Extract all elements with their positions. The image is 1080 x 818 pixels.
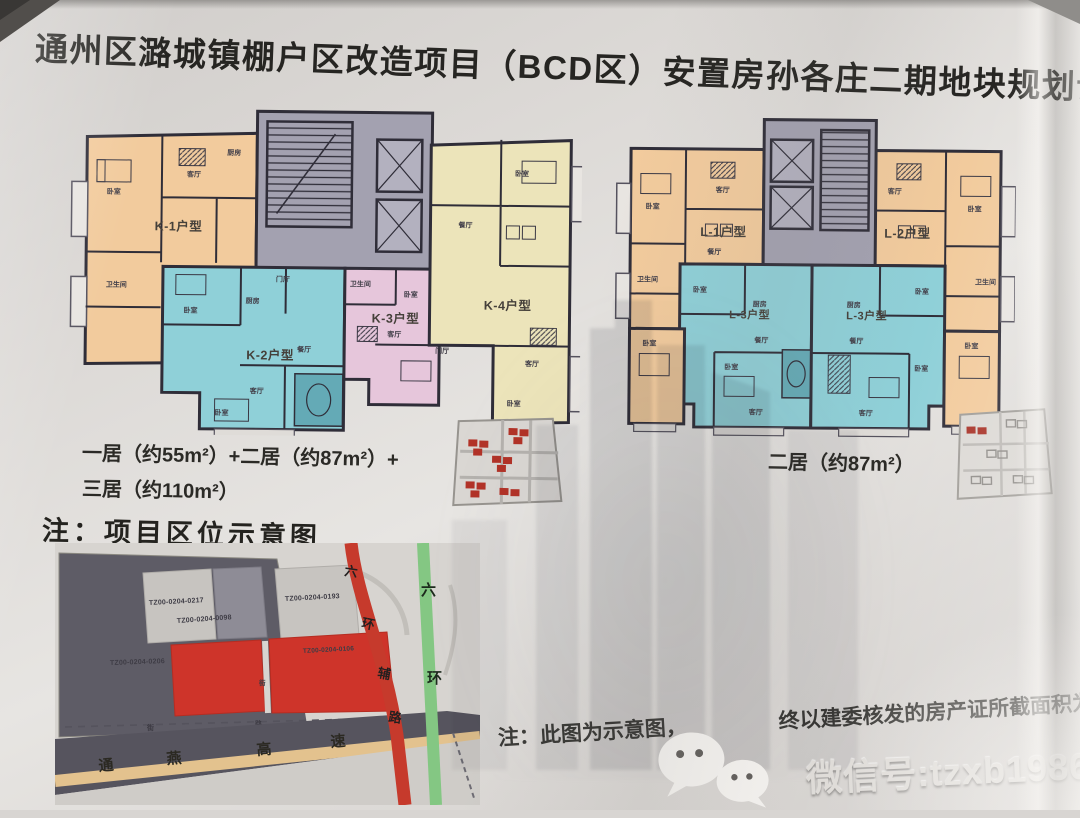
unit-l3-right: 卧室 厨房 餐厅 卧室 客厅 L-3户型 [811,265,945,437]
caption-right: 二居（约87m²） [768,445,915,477]
room-label: 卧室 [214,408,228,417]
room-label: 客厅 [887,187,902,196]
room-label: 卧室 [915,287,929,296]
highway-label-char: 通 [98,757,114,775]
room-label: 卧室 [642,338,656,347]
photo-top-edge [0,0,1080,9]
room-label: 卫生间 [637,274,658,283]
unit-label-k3: K-3户型 [372,311,420,326]
unit-label-l1: L-1户型 [700,224,746,239]
room-label: 厨房 [847,300,861,309]
highway-label-char: 速 [330,732,347,751]
poster-title: 通州区潞城镇棚户区改造项目（BCD区）安置房孙各庄二期地块规划设计方案 [34,22,1055,107]
ring-aux-char: 六 [344,563,359,580]
unit-l1-lower: 卧室 [629,328,685,431]
site-plan-thumbnail-right [944,401,1061,509]
room-label: 客厅 [186,170,201,179]
room-label: 卫生间 [350,279,371,288]
ring-char: 六 [421,581,436,599]
elevator [377,140,423,192]
room-label: 卧室 [693,285,707,294]
room-label: 客厅 [249,386,264,395]
elevator [376,200,422,252]
room-label: 餐厅 [296,345,311,354]
room-label: 餐厅 [706,247,721,256]
floor-plan-right: 卧室 客厅 卫生间 餐厅 L-1户型 卧室 客厅 卫生间 L-2户型 [614,113,1017,441]
location-map: TZ00-0204-0206 TZ00-0204-0217 TZ00-0204-… [55,543,480,805]
room-label: 卧室 [107,187,121,196]
room-label: 卧室 [184,306,198,315]
site-plan-thumbnail-left [439,411,571,515]
room-label: 卧室 [968,204,982,213]
wechat-icon [648,722,792,817]
poster-photo: 通州区潞城镇棚户区改造项目（BCD区）安置房孙各庄二期地块规划设计方案 卧室 客… [0,0,1080,810]
unit-label-l2: L-2户型 [884,226,930,241]
room-label: 餐厅 [848,336,863,345]
room-label: 卧室 [646,202,660,211]
room-label: 卧室 [515,169,529,178]
room-label: 餐厅 [457,220,472,229]
floor-plan-left: 卧室 客厅 厨房 卫生间 餐厅 门厅 K-1户型 [64,101,582,438]
room-label: 卧室 [914,364,928,373]
room-label: 餐厅 [753,335,768,344]
street-label: 街 [258,678,266,687]
elevator [770,187,812,229]
room-label: 客厅 [524,359,539,368]
room-label: 卫生间 [975,277,996,286]
room-label: 卧室 [507,399,521,408]
unit-label-k4: K-4户型 [484,298,532,313]
room-label: 厨房 [753,299,767,308]
highway-label-char: 高 [256,740,273,759]
unit-label-k2: K-2户型 [246,347,294,362]
highway-label-char: 燕 [166,749,183,768]
unit-label-l3: L-3户型 [846,308,887,322]
caption-left-line1: 一居（约55m²）+二居（约87m²）+ [82,437,399,473]
stair-elevator-core [763,120,876,276]
ring-aux-char: 辅 [376,665,391,682]
note-part2: 终以建委核发的房产证所截面积为准 [778,690,1080,733]
room-label: 卧室 [724,362,738,371]
photo-corner-topright [1028,0,1080,24]
room-label: 卫生间 [106,280,127,289]
room-label: 客厅 [715,185,730,194]
room-label: 卧室 [404,290,418,299]
room-label: 门厅 [435,346,449,355]
room-label: 卧室 [964,341,978,350]
room-label: 厨房 [246,296,260,305]
street-label: 街 [146,723,154,732]
unit-k3: 卫生间 卧室 客厅 K-3户型 [344,268,440,405]
caption-left-line2: 三居（约110m²） [82,472,239,504]
room-label: 客厅 [858,408,873,417]
room-label: 客厅 [386,330,401,339]
map-parcels: TZ00-0204-0206 TZ00-0204-0217 TZ00-0204-… [59,553,395,737]
room-label: 门厅 [276,275,290,284]
room-label: 厨房 [227,148,241,157]
unit-label-k1: K-1户型 [155,218,203,233]
elevator [771,140,813,182]
unit-label-l3: L-3户型 [729,307,770,321]
unit-l3-left: 卧室 厨房 餐厅 卧室 客厅 L-3户型 [679,264,812,436]
ring-char: 环 [427,670,442,687]
watermark-text: 微信号:tzxb1986 [805,738,1080,803]
unit-k2: 卧室 厨房 餐厅 客厅 卧室 门厅 K-2户型 [161,266,345,438]
room-label: 客厅 [748,407,763,416]
unit-k4: 卧室 餐厅 门厅 客厅 卧室 K-4户型 [428,139,582,425]
